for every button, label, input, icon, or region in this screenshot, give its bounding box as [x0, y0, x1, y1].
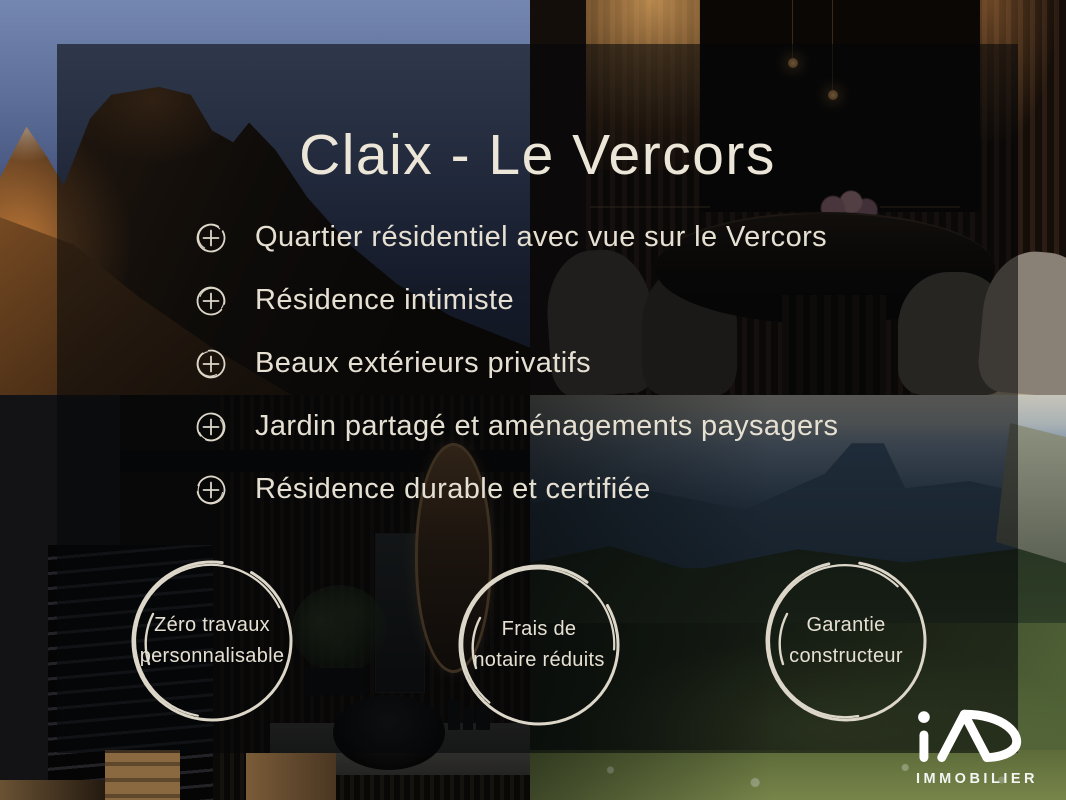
- flyer-content: Claix - Le Vercors Quartier résidentiel …: [57, 44, 1018, 753]
- wood-floor: [246, 753, 336, 800]
- feature-label: Résidence durable et certifiée: [255, 473, 651, 506]
- badge-line2: constructeur: [789, 641, 903, 672]
- badge-line2: personnalisable: [140, 641, 285, 672]
- page-title: Claix - Le Vercors: [57, 122, 1018, 188]
- iad-logo: iAD IMMOBILIER: [909, 703, 1045, 787]
- badge-line1: Garantie: [806, 610, 885, 641]
- circled-plus-icon: [193, 220, 229, 256]
- feature-item: Beaux extérieurs privatifs: [193, 332, 838, 395]
- wood-steps: [105, 750, 180, 800]
- feature-item: Quartier résidentiel avec vue sur le Ver…: [193, 206, 838, 269]
- iad-logo-icon: [909, 703, 1045, 765]
- badge-line1: Frais de: [502, 614, 577, 645]
- badge-zero-travaux: Zéro travaux personnalisable: [127, 556, 297, 726]
- badge-frais-notaire: Frais de notaire réduits: [454, 560, 624, 730]
- badge-garantie-constructeur: Garantie constructeur: [761, 556, 931, 726]
- iad-logo-subtitle: IMMOBILIER: [909, 771, 1045, 787]
- circled-plus-icon: [193, 283, 229, 319]
- feature-label: Résidence intimiste: [255, 284, 514, 317]
- badge-line2: notaire réduits: [473, 645, 604, 676]
- feature-label: Jardin partagé et aménagements paysagers: [255, 410, 838, 443]
- badge-line1: Zéro travaux: [154, 610, 270, 641]
- feature-label: Beaux extérieurs privatifs: [255, 347, 591, 380]
- circled-plus-icon: [193, 472, 229, 508]
- feature-item: Jardin partagé et aménagements paysagers: [193, 395, 838, 458]
- feature-item: Résidence durable et certifiée: [193, 458, 838, 521]
- circled-plus-icon: [193, 346, 229, 382]
- wood-floor-corner: [0, 780, 105, 800]
- property-flyer: Claix - Le Vercors Quartier résidentiel …: [0, 0, 1066, 800]
- feature-label: Quartier résidentiel avec vue sur le Ver…: [255, 221, 827, 254]
- circled-plus-icon: [193, 409, 229, 445]
- feature-list: Quartier résidentiel avec vue sur le Ver…: [193, 206, 838, 521]
- feature-item: Résidence intimiste: [193, 269, 838, 332]
